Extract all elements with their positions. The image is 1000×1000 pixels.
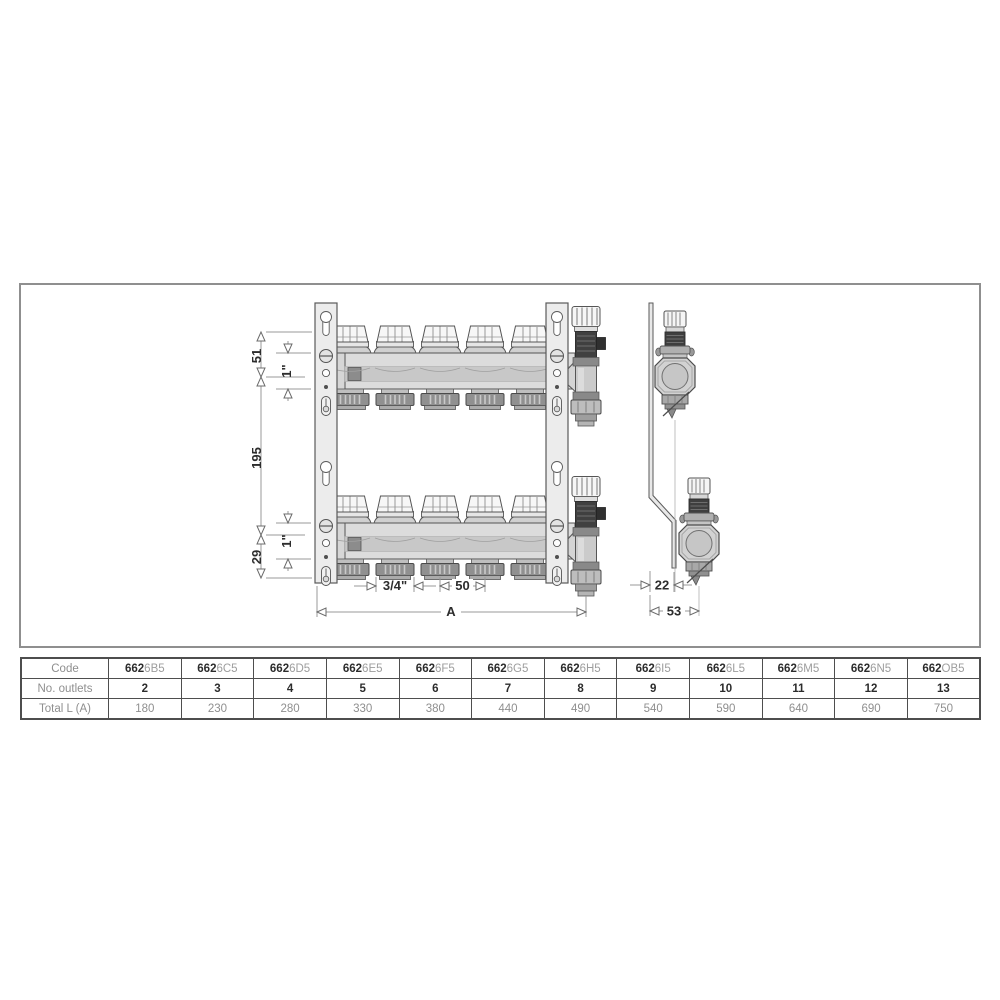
table-cell-code: 6626E5 xyxy=(326,658,399,679)
table-cell-outlets: 11 xyxy=(762,679,835,699)
table-cell-code: 6626B5 xyxy=(109,658,182,679)
table-cell-outlets: 10 xyxy=(690,679,763,699)
row-label-code: Code xyxy=(21,658,109,679)
dim-label-53: 53 xyxy=(667,604,681,619)
table-cell-code: 6626N5 xyxy=(835,658,908,679)
table-cell-outlets: 13 xyxy=(907,679,980,699)
dim-label-1in-bottom: 1" xyxy=(279,534,294,547)
table-cell-code: 6626L5 xyxy=(690,658,763,679)
table-cell-code: 6626G5 xyxy=(472,658,545,679)
table-cell-total: 330 xyxy=(326,699,399,720)
table-cell-outlets: 3 xyxy=(181,679,254,699)
table-cell-total: 750 xyxy=(907,699,980,720)
table-cell-total: 640 xyxy=(762,699,835,720)
table-row-code: Code 6626B56626C56626D56626E56626F56626G… xyxy=(21,658,980,679)
front-view xyxy=(315,303,606,596)
table-cell-total: 490 xyxy=(544,699,617,720)
dim-label-3-4in: 3/4" xyxy=(383,578,407,593)
table-cell-outlets: 2 xyxy=(109,679,182,699)
table-cell-total: 590 xyxy=(690,699,763,720)
dim-label-29: 29 xyxy=(249,550,264,564)
side-return-valve xyxy=(679,478,719,585)
manifold-technical-drawing: 51 195 29 1" 1" 3/4" 50 xyxy=(0,0,1000,1000)
table-cell-outlets: 9 xyxy=(617,679,690,699)
table-cell-code: 6626F5 xyxy=(399,658,472,679)
table-cell-total: 380 xyxy=(399,699,472,720)
table-row-outlets: No. outlets 2345678910111213 xyxy=(21,679,980,699)
table-cell-code: 6626I5 xyxy=(617,658,690,679)
table-cell-outlets: 4 xyxy=(254,679,327,699)
spec-table: Code 6626B56626C56626D56626E56626F56626G… xyxy=(20,657,981,720)
dim-label-51: 51 xyxy=(249,349,264,363)
table-cell-code: 6626M5 xyxy=(762,658,835,679)
side-supply-valve xyxy=(655,311,695,418)
table-cell-total: 690 xyxy=(835,699,908,720)
table-cell-outlets: 8 xyxy=(544,679,617,699)
table-row-total: Total L (A) 1802302803303804404905405906… xyxy=(21,699,980,720)
table-cell-total: 180 xyxy=(109,699,182,720)
dim-label-1in-top: 1" xyxy=(279,364,294,377)
table-cell-total: 230 xyxy=(181,699,254,720)
row-label-outlets: No. outlets xyxy=(21,679,109,699)
table-cell-outlets: 12 xyxy=(835,679,908,699)
table-cell-code: 6626D5 xyxy=(254,658,327,679)
table-cell-code: 662OB5 xyxy=(907,658,980,679)
table-cell-outlets: 6 xyxy=(399,679,472,699)
table-cell-outlets: 5 xyxy=(326,679,399,699)
dim-label-22: 22 xyxy=(655,578,669,593)
row-label-total: Total L (A) xyxy=(21,699,109,720)
table-cell-total: 280 xyxy=(254,699,327,720)
table-cell-code: 6626H5 xyxy=(544,658,617,679)
dim-label-50: 50 xyxy=(455,578,469,593)
dim-label-A: A xyxy=(446,604,456,619)
dim-label-195: 195 xyxy=(249,447,264,469)
table-cell-outlets: 7 xyxy=(472,679,545,699)
side-view xyxy=(649,303,719,616)
table-cell-total: 540 xyxy=(617,699,690,720)
table-cell-total: 440 xyxy=(472,699,545,720)
table-cell-code: 6626C5 xyxy=(181,658,254,679)
